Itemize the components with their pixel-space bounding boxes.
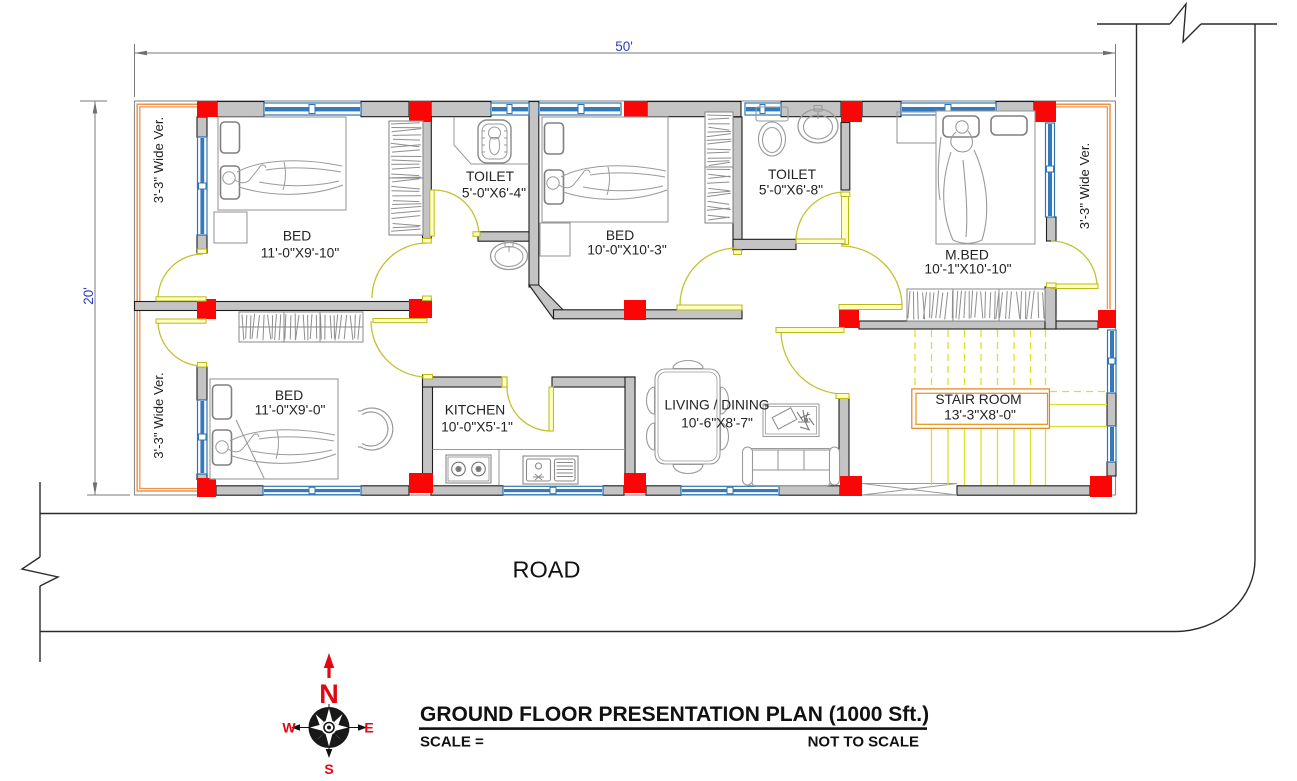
svg-text:13'-3"X8'-0": 13'-3"X8'-0" [944,408,1016,423]
svg-text:NOT TO SCALE: NOT TO SCALE [808,734,919,751]
svg-text:10'-1"X10'-10": 10'-1"X10'-10" [924,262,1011,277]
svg-text:TOILET: TOILET [466,169,515,184]
svg-text:5'-0"X6'-4": 5'-0"X6'-4" [462,186,526,201]
svg-text:BED: BED [283,229,311,244]
svg-text:LIVING / DINING: LIVING / DINING [664,398,769,413]
svg-text:GROUND FLOOR PRESENTATION PLAN: GROUND FLOOR PRESENTATION PLAN (1000 Sft… [420,703,929,726]
svg-text:S: S [324,761,333,777]
svg-text:3'-3" Wide Ver.: 3'-3" Wide Ver. [1077,143,1092,229]
svg-text:50': 50' [615,39,633,54]
svg-text:10'-0"X5'-1": 10'-0"X5'-1" [441,420,513,435]
svg-text:10'-0"X10'-3": 10'-0"X10'-3" [587,243,667,258]
svg-text:SCALE =: SCALE = [420,734,484,751]
svg-text:STAIR ROOM: STAIR ROOM [935,392,1021,407]
svg-text:KITCHEN: KITCHEN [445,403,506,418]
svg-text:M.BED: M.BED [945,248,989,263]
svg-text:BED: BED [275,388,303,403]
svg-text:3'-3" Wide Ver.: 3'-3" Wide Ver. [151,117,166,203]
svg-text:10'-6"X8'-7": 10'-6"X8'-7" [681,416,753,431]
svg-text:TOILET: TOILET [768,167,817,182]
svg-text:3'-3" Wide Ver.: 3'-3" Wide Ver. [151,372,166,458]
svg-text:BED: BED [606,228,634,243]
svg-text:W: W [282,720,296,736]
svg-text:11'-0"X9'-0": 11'-0"X9'-0" [255,403,326,418]
svg-text:E: E [364,720,373,736]
svg-text:20': 20' [81,287,96,305]
svg-text:5'-0"X6'-8": 5'-0"X6'-8" [759,183,823,198]
svg-text:11'-0"X9'-10": 11'-0"X9'-10" [261,246,340,261]
svg-text:ROAD: ROAD [513,557,581,583]
